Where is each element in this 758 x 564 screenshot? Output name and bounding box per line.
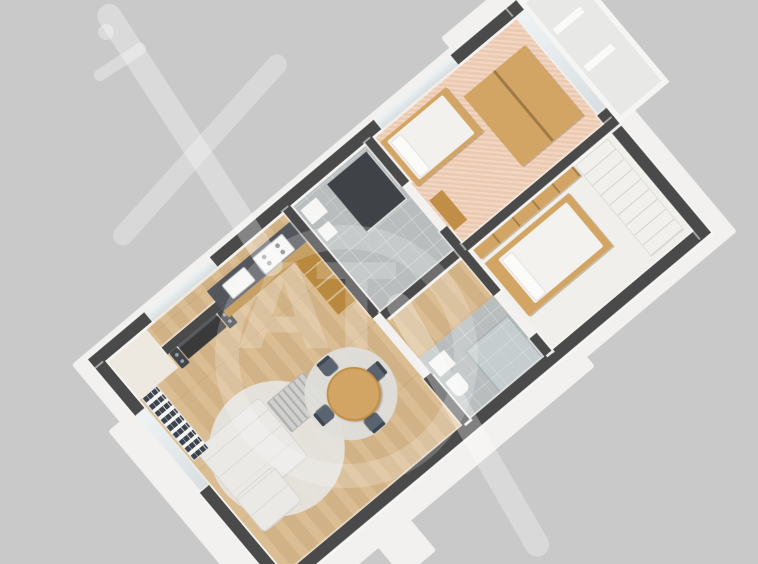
balcony-divider-panel [584,43,616,71]
watermark-sword-guard-icon [92,41,149,84]
balcony-divider-panel [553,6,585,34]
apartment-plan [105,17,694,564]
floorplan-render: AT [0,0,758,564]
watermark-sword-pommel-icon [98,24,114,40]
